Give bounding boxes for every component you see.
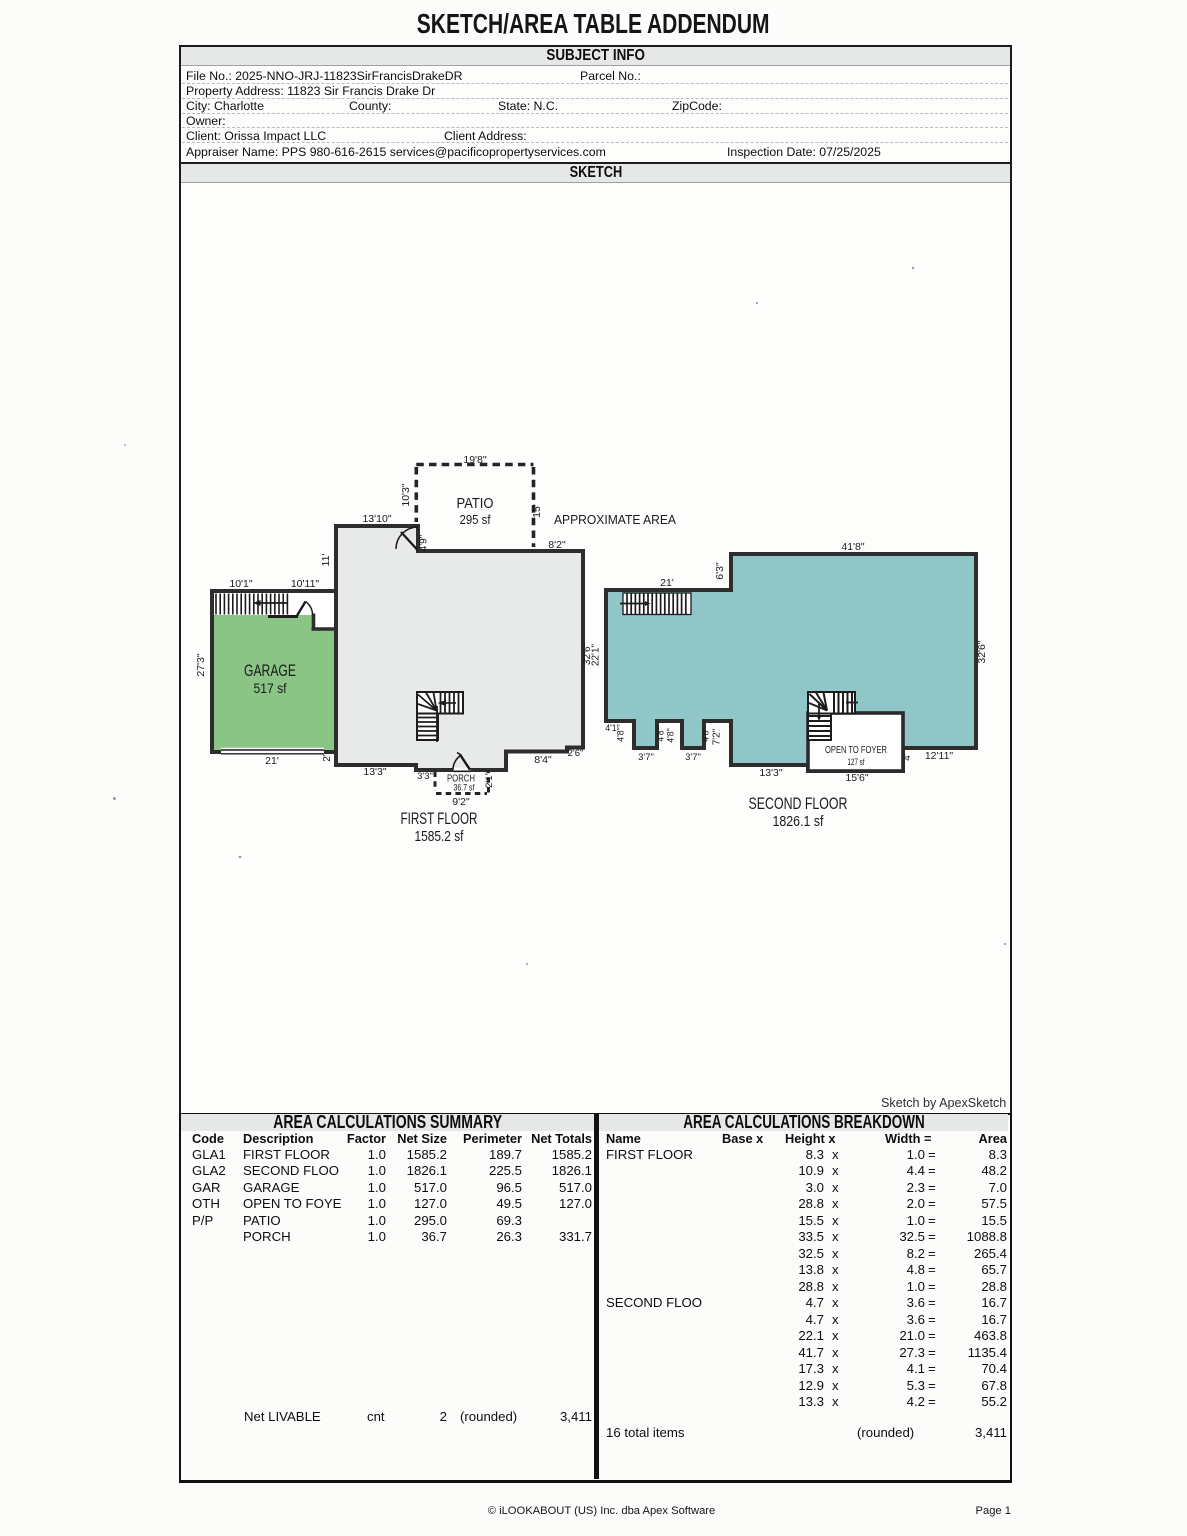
svg-text:1585.2 sf: 1585.2 sf [415, 829, 465, 845]
svg-text:12'11": 12'11" [925, 750, 954, 762]
svg-text:4'8": 4'8" [666, 728, 676, 743]
svg-text:13'10": 13'10" [362, 513, 391, 525]
svg-text:32'6": 32'6" [976, 640, 988, 664]
svg-text:127 sf: 127 sf [848, 757, 865, 768]
svg-text:4': 4' [902, 753, 913, 761]
svg-text:2': 2' [322, 754, 333, 762]
svg-text:GARAGE: GARAGE [244, 662, 296, 680]
svg-text:10'11": 10'11" [291, 578, 320, 590]
svg-text:3'3": 3'3" [417, 771, 433, 782]
svg-text:7'2": 7'2" [712, 728, 723, 745]
svg-text:9'2": 9'2" [452, 796, 470, 808]
svg-text:11': 11' [320, 554, 332, 567]
svg-text:517 sf: 517 sf [254, 680, 287, 696]
svg-text:6'3": 6'3" [714, 562, 726, 580]
svg-text:15': 15' [531, 504, 543, 518]
svg-text:8'4": 8'4" [534, 754, 552, 766]
svg-text:3'7": 3'7" [685, 752, 701, 763]
svg-text:APPROXIMATE AREA: APPROXIMATE AREA [554, 512, 676, 527]
svg-text:13'3": 13'3" [759, 767, 783, 779]
svg-text:SECOND FLOOR: SECOND FLOOR [749, 794, 848, 813]
svg-text:19'8": 19'8" [463, 454, 487, 466]
svg-text:1826.1 sf: 1826.1 sf [773, 814, 825, 830]
svg-text:15'6": 15'6" [845, 772, 869, 784]
svg-text:4'8": 4'8" [656, 727, 666, 742]
svg-text:295 sf: 295 sf [460, 512, 491, 527]
svg-text:2'1": 2'1" [484, 772, 495, 788]
svg-text:13'3": 13'3" [363, 766, 387, 778]
svg-text:10'3": 10'3" [400, 483, 412, 507]
svg-text:21': 21' [265, 755, 279, 767]
svg-text:FIRST FLOOR: FIRST FLOOR [401, 809, 478, 828]
svg-text:OPEN TO FOYER: OPEN TO FOYER [825, 745, 887, 756]
svg-text:4'9": 4'9" [419, 534, 430, 551]
svg-text:2'6": 2'6" [568, 748, 584, 759]
svg-text:4'8": 4'8" [616, 727, 626, 742]
svg-text:41'8": 41'8" [841, 541, 865, 553]
svg-text:4'8": 4'8" [701, 727, 711, 742]
svg-text:22'1": 22'1" [591, 643, 602, 666]
svg-text:36.7 sf: 36.7 sf [454, 783, 475, 794]
svg-text:27'3": 27'3" [195, 653, 207, 677]
svg-text:3'7": 3'7" [638, 752, 654, 763]
svg-text:21': 21' [660, 577, 674, 589]
svg-text:8'2": 8'2" [548, 539, 566, 551]
svg-text:10'1": 10'1" [229, 578, 253, 590]
svg-text:PATIO: PATIO [457, 495, 494, 512]
